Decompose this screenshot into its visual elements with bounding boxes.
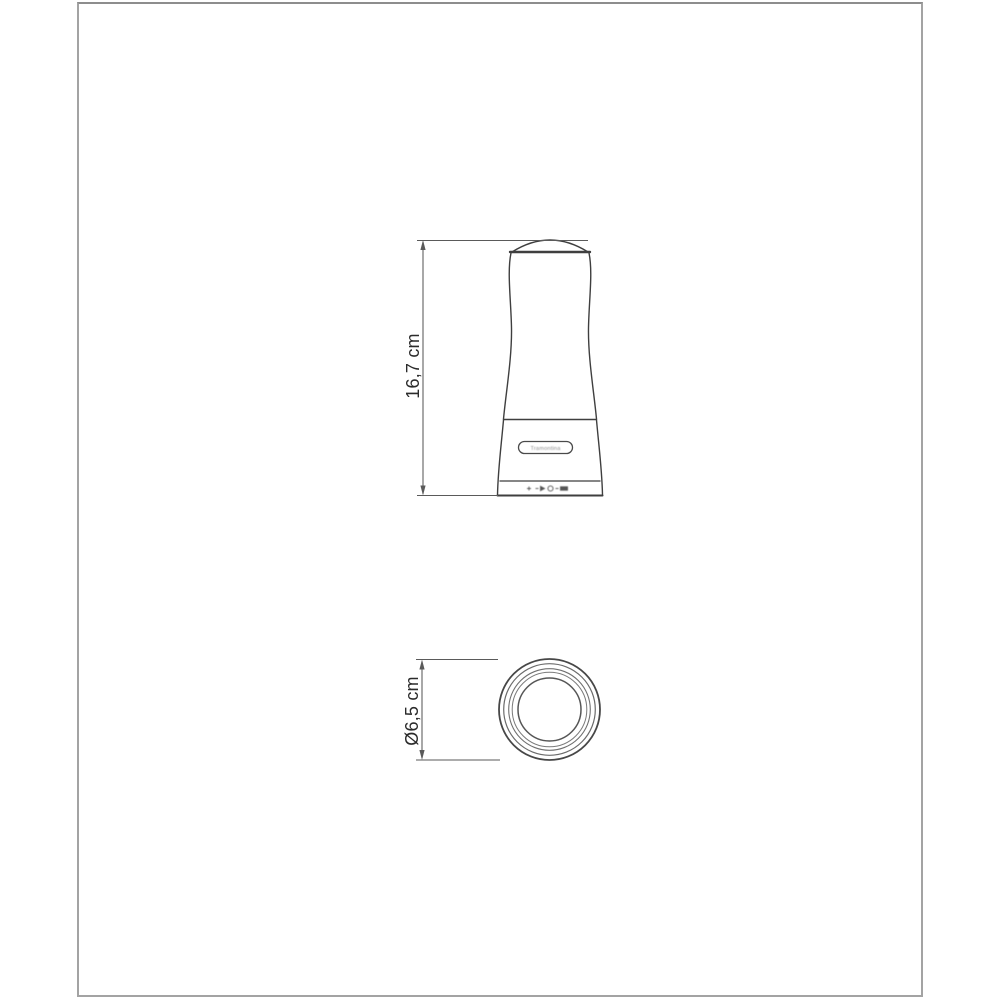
ring-circle [512,672,587,747]
arrow-down-icon [420,486,425,496]
mill-top-view: Ø6,5 cm [402,659,600,760]
ring-circle [509,669,591,751]
technical-drawing: Tramontina 16,7 cm [0,0,1000,1000]
grind-adjustment-marks [527,486,568,491]
pepper-mill-front-view: Tramontina 16,7 cm [403,240,603,496]
brand-logo-badge: Tramontina [519,442,573,454]
inner-circle [518,678,581,741]
mill-body-right-edge [588,253,596,419]
mill-base-right-edge [597,420,603,495]
mill-dome-cap [512,240,588,252]
height-dimension [417,241,588,496]
outer-circle [499,659,600,760]
arrow-mark-icon [541,486,545,490]
solid-mark [561,487,568,490]
plus-mark-icon [527,487,531,491]
diameter-dimension-label: Ø6,5 cm [402,676,422,745]
diameter-dimension [416,660,500,761]
arrow-up-icon [420,240,425,250]
circle-mark-icon [548,486,553,491]
arrow-up-icon [419,660,424,670]
mill-top-view-circles [499,659,600,760]
mill-base-left-edge [498,420,504,495]
height-dimension-label: 16,7 cm [403,333,423,398]
screenshot-canvas: Tramontina 16,7 cm [0,0,1000,1000]
mill-body-left-edge [504,253,512,419]
arrow-down-icon [419,750,424,760]
pepper-mill-front-outline [498,240,603,496]
brand-logo-text: Tramontina [530,446,561,452]
